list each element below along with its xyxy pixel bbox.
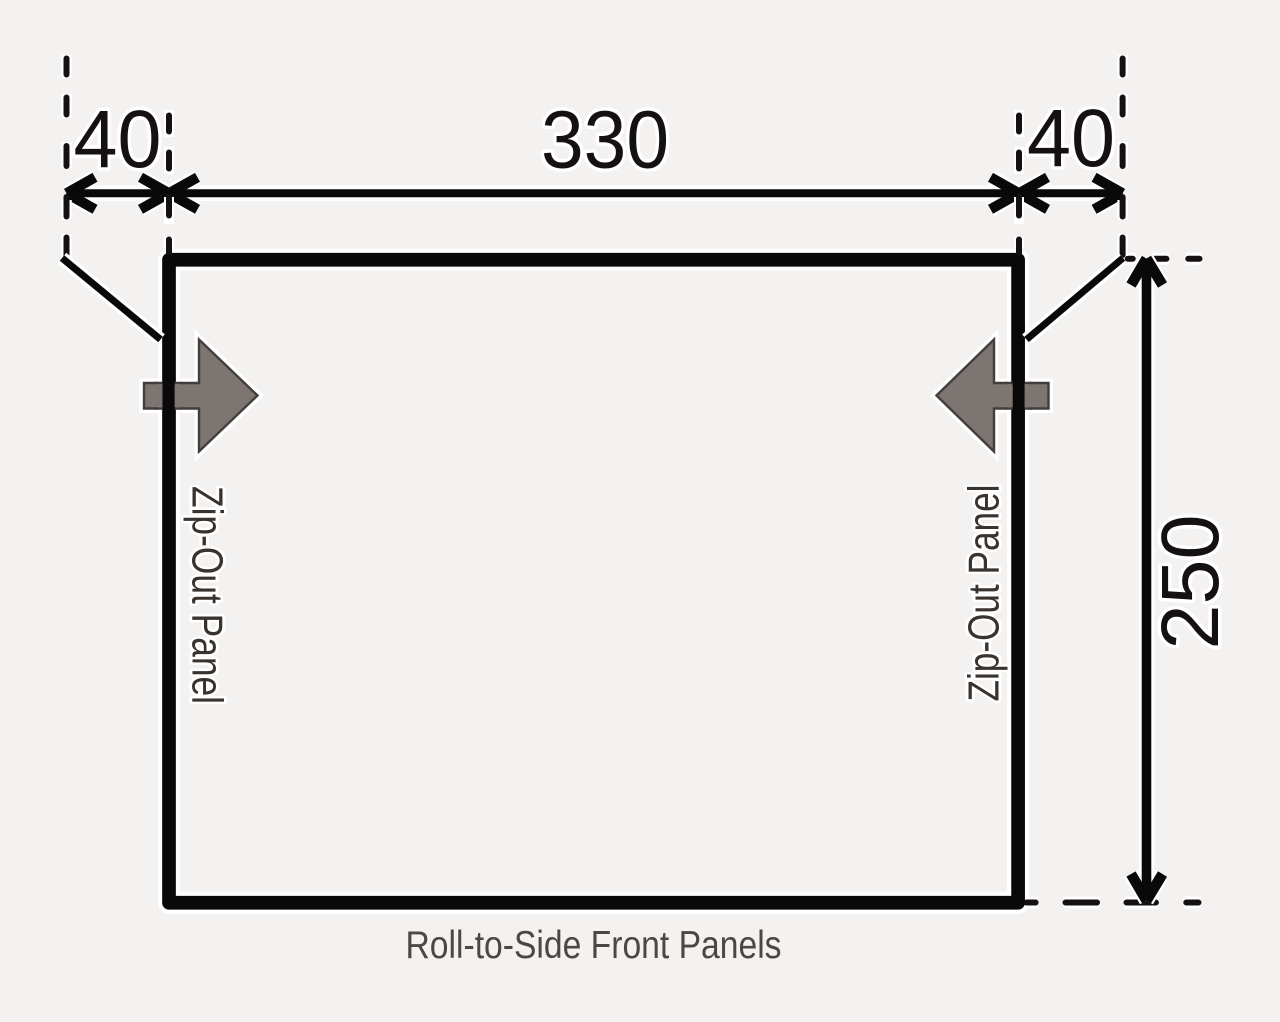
svg-text:40: 40 [1027, 93, 1115, 184]
svg-text:330: 330 [541, 95, 669, 186]
svg-text:Roll-to-Side Front Panels: Roll-to-Side Front Panels [406, 924, 782, 967]
svg-text:Zip-Out Panel: Zip-Out Panel [183, 486, 231, 704]
svg-text:Zip-Out Panel: Zip-Out Panel [961, 485, 1009, 702]
svg-text:250: 250 [1145, 515, 1236, 650]
svg-text:40: 40 [74, 94, 162, 185]
